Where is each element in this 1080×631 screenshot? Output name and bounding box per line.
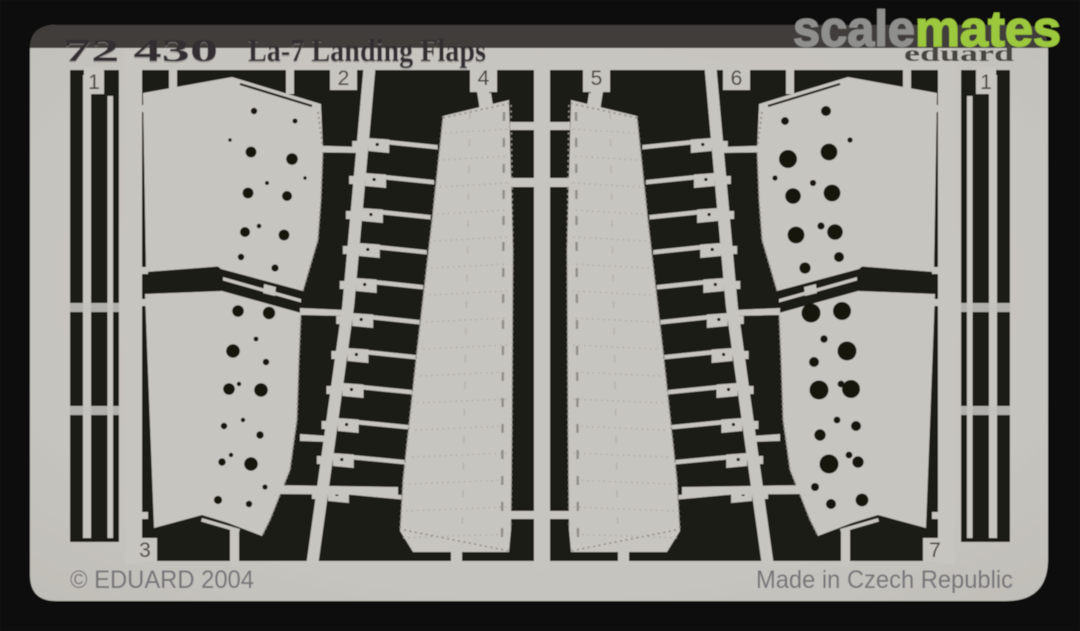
svg-text:La-7 Landing Flaps: La-7 Landing Flaps — [248, 32, 486, 68]
svg-text:Made in Czech Republic: Made in Czech Republic — [756, 566, 1013, 594]
svg-text:© EDUARD 2004: © EDUARD 2004 — [70, 566, 254, 594]
svg-text:7: 7 — [929, 539, 941, 562]
svg-text:scale: scale — [793, 1, 915, 57]
svg-text:3: 3 — [139, 539, 151, 562]
svg-text:72 430: 72 430 — [63, 32, 218, 68]
svg-text:2: 2 — [338, 67, 350, 90]
svg-text:4: 4 — [478, 67, 490, 90]
svg-text:6: 6 — [731, 67, 743, 90]
svg-text:5: 5 — [591, 67, 603, 90]
svg-text:1: 1 — [980, 71, 992, 94]
svg-text:mates: mates — [915, 1, 1061, 57]
svg-text:1: 1 — [88, 71, 100, 94]
